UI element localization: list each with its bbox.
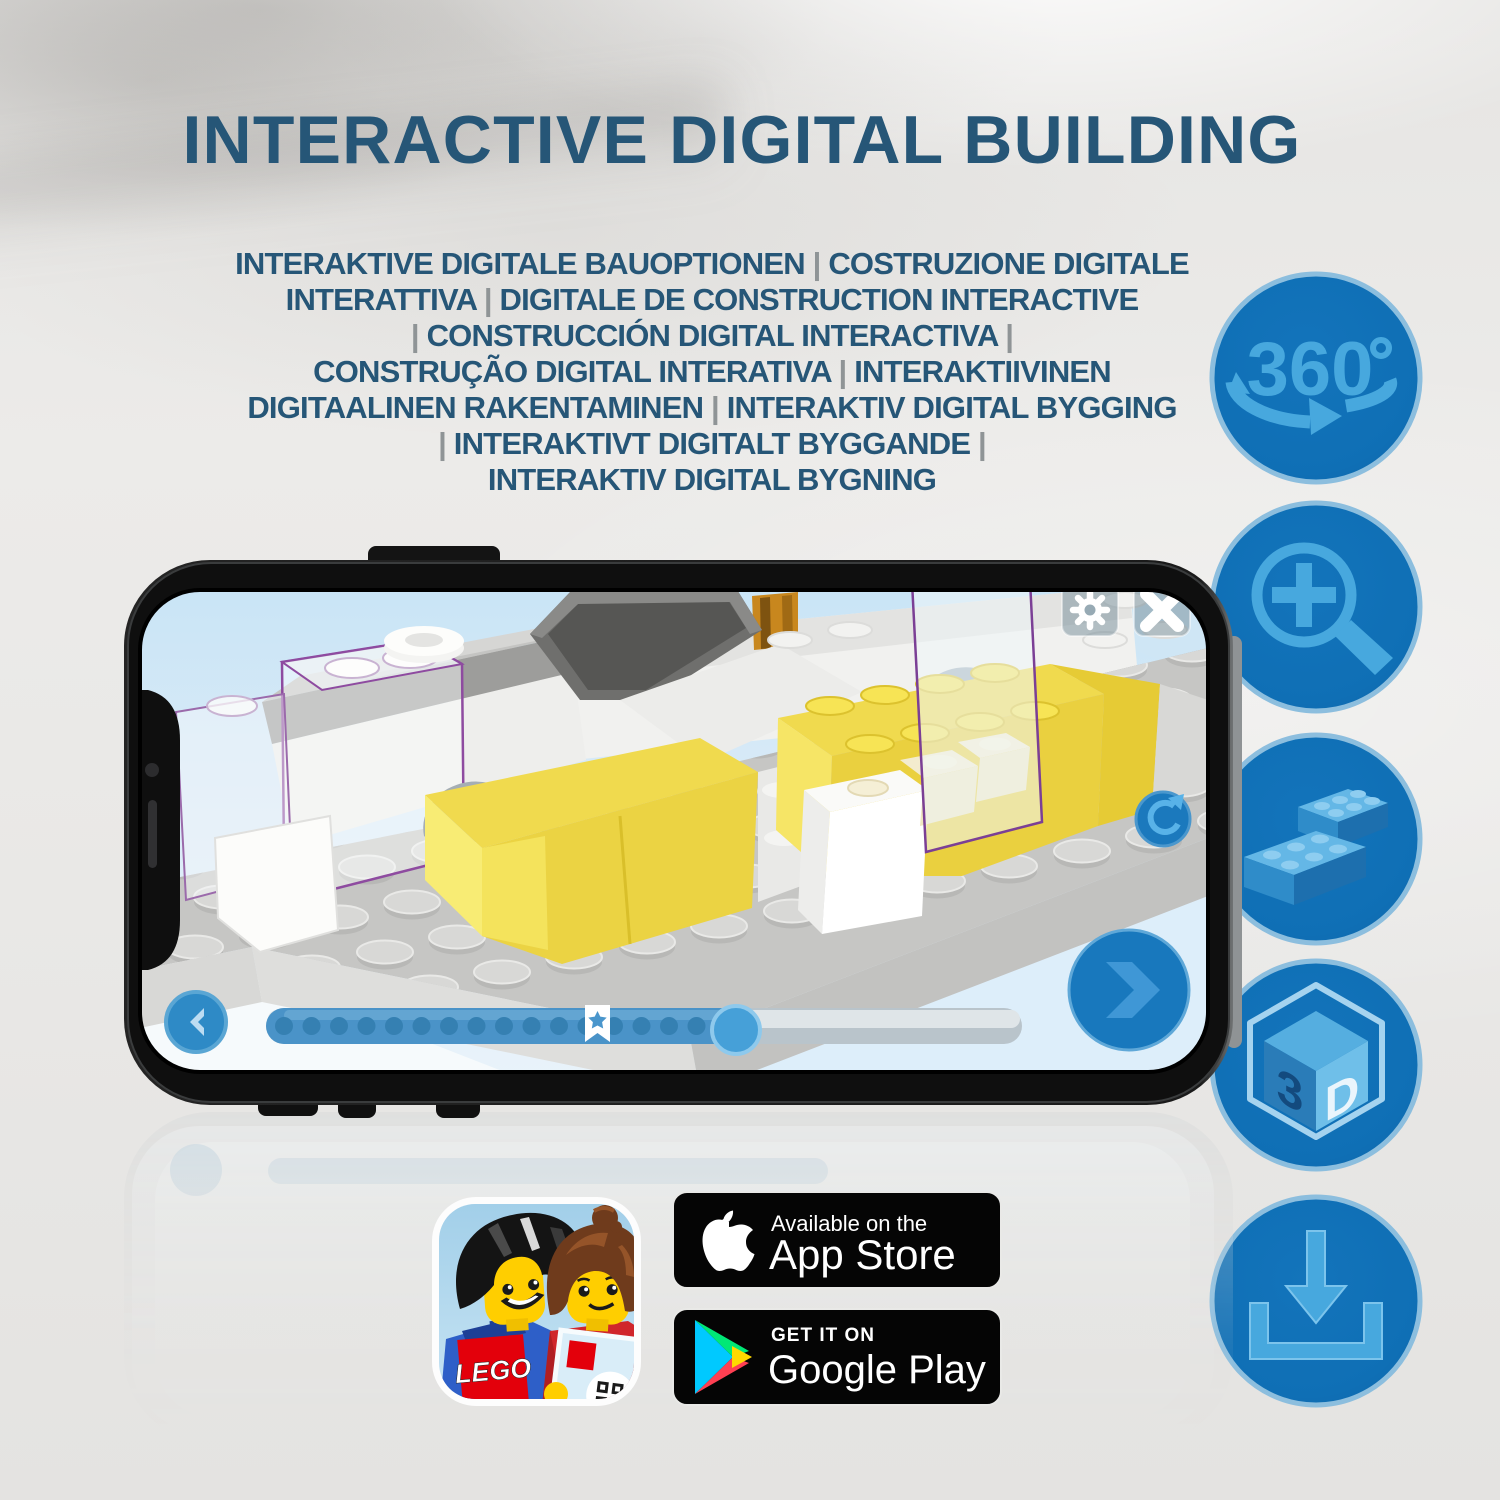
svg-text:GET IT ON: GET IT ON	[771, 1325, 875, 1346]
svg-text:Google Play: Google Play	[768, 1348, 986, 1392]
svg-text:App Store: App Store	[769, 1231, 956, 1278]
